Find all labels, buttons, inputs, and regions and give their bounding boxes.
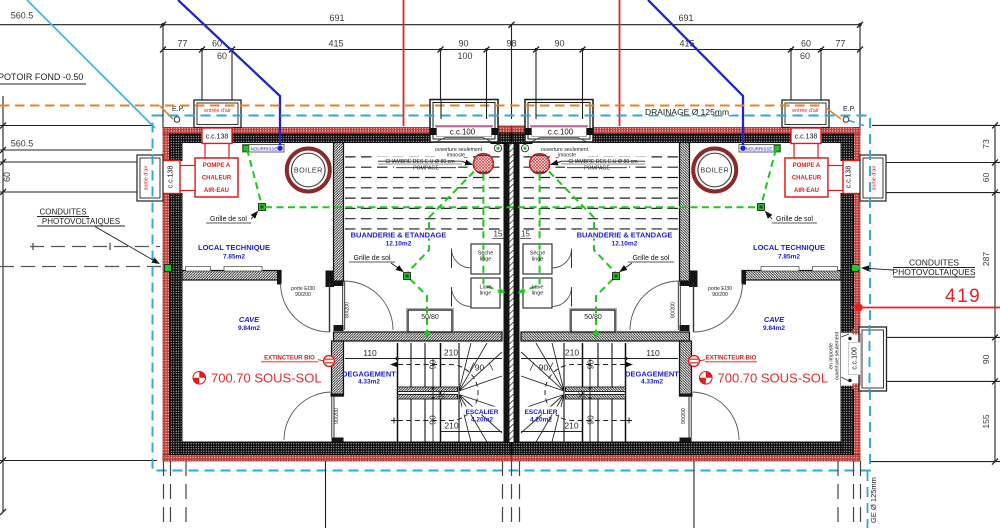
svg-text:Grille de sol: Grille de sol <box>776 216 813 223</box>
svg-text:691: 691 <box>678 13 693 23</box>
svg-text:560.5: 560.5 <box>11 139 34 149</box>
svg-text:90: 90 <box>539 363 549 373</box>
svg-text:60: 60 <box>800 51 810 61</box>
svg-text:90: 90 <box>437 390 447 400</box>
svg-text:c.c.138: c.c.138 <box>206 134 229 141</box>
svg-text:210: 210 <box>564 421 578 431</box>
svg-text:E.P.: E.P. <box>843 106 855 113</box>
svg-text:CHALEUR: CHALEUR <box>202 176 232 182</box>
svg-text:ouverture seulement: ouverture seulement <box>835 331 841 380</box>
svg-text:50/80: 50/80 <box>421 314 439 321</box>
svg-text:9.84m2: 9.84m2 <box>763 325 785 332</box>
svg-text:110: 110 <box>363 348 377 358</box>
svg-text:AIR-EAU: AIR-EAU <box>204 188 229 194</box>
svg-text:691: 691 <box>329 13 344 23</box>
svg-text:80/200: 80/200 <box>345 302 351 318</box>
svg-text:sortie d'air: sortie d'air <box>872 165 878 190</box>
svg-text:4.33m2: 4.33m2 <box>358 379 380 386</box>
svg-text:77: 77 <box>177 39 187 49</box>
svg-text:Grille de sol: Grille de sol <box>354 255 391 262</box>
svg-text:90/200: 90/200 <box>334 408 340 424</box>
svg-text:c.c.100: c.c.100 <box>450 128 476 137</box>
svg-text:77: 77 <box>835 39 845 49</box>
svg-text:c.c.138: c.c.138 <box>168 166 175 189</box>
svg-text:BUANDERIE & ETANDAGE: BUANDERIE & ETANDAGE <box>577 231 673 240</box>
svg-text:POMPE A: POMPE A <box>203 163 231 169</box>
svg-text:BOILER: BOILER <box>294 166 323 175</box>
svg-text:BUANDERIE & ETANDAGE: BUANDERIE & ETANDAGE <box>351 231 447 240</box>
svg-text:NOURRISSE: NOURRISSE <box>251 147 278 152</box>
svg-text:entrée d'air: entrée d'air <box>204 108 231 114</box>
svg-text:7.85m2: 7.85m2 <box>223 254 245 261</box>
svg-text:50/80: 50/80 <box>584 314 602 321</box>
svg-text:CONDUITES: CONDUITES <box>909 258 959 268</box>
svg-text:60: 60 <box>217 51 227 61</box>
svg-text:E.P.: E.P. <box>172 106 184 113</box>
svg-text:60: 60 <box>801 39 811 49</box>
svg-text:15: 15 <box>521 230 530 239</box>
svg-text:PHOTOVOLTAIQUES: PHOTOVOLTAIQUES <box>42 217 120 226</box>
svg-text:560.5: 560.5 <box>11 11 34 21</box>
svg-text:CAVE: CAVE <box>764 315 785 324</box>
svg-text:15: 15 <box>494 230 503 239</box>
svg-text:c.c.100: c.c.100 <box>852 347 859 370</box>
svg-text:linge: linge <box>532 291 544 297</box>
svg-text:ESCALIER: ESCALIER <box>466 409 499 416</box>
svg-text:12.10m2: 12.10m2 <box>386 241 412 248</box>
svg-text:CAVE: CAVE <box>239 315 260 324</box>
svg-text:CHALEUR: CHALEUR <box>792 176 822 182</box>
svg-text:90: 90 <box>981 354 991 364</box>
svg-text:90: 90 <box>577 390 587 400</box>
svg-text:12.10m2: 12.10m2 <box>612 241 638 248</box>
svg-text:90: 90 <box>586 360 596 370</box>
svg-text:c.c.138: c.c.138 <box>795 134 818 141</box>
svg-text:CONDUITES: CONDUITES <box>39 208 86 217</box>
svg-text:90: 90 <box>554 39 564 49</box>
svg-text:NOURRISSE: NOURRISSE <box>746 147 773 152</box>
svg-text:700.70 SOUS-SOL: 700.70 SOUS-SOL <box>211 371 322 386</box>
svg-text:90/200: 90/200 <box>681 408 687 424</box>
svg-text:7.85m2: 7.85m2 <box>778 254 800 261</box>
svg-text:155: 155 <box>981 414 991 428</box>
svg-text:415: 415 <box>328 39 343 49</box>
svg-text:PHOTOVOLTAIQUES: PHOTOVOLTAIQUES <box>892 267 975 277</box>
svg-text:c.c.100: c.c.100 <box>548 128 574 137</box>
svg-text:4.20m2: 4.20m2 <box>530 417 552 424</box>
svg-text:4.33m2: 4.33m2 <box>641 379 663 386</box>
svg-text:210: 210 <box>444 348 458 358</box>
svg-text:90: 90 <box>428 415 438 425</box>
svg-text:DEGAGEMENT: DEGAGEMENT <box>625 370 679 379</box>
svg-text:90/200: 90/200 <box>712 292 728 298</box>
svg-text:DEGAGEMENT: DEGAGEMENT <box>342 370 396 379</box>
svg-text:700.70 SOUS-SOL: 700.70 SOUS-SOL <box>718 371 829 386</box>
svg-text:98: 98 <box>506 39 516 49</box>
svg-text:linge: linge <box>532 257 544 263</box>
svg-text:80/200: 80/200 <box>671 302 677 318</box>
svg-text:Grille de sol: Grille de sol <box>633 255 670 262</box>
svg-text:ESCALIER: ESCALIER <box>525 409 558 416</box>
svg-text:c.c.138: c.c.138 <box>846 166 853 189</box>
svg-text:BOILER: BOILER <box>700 166 729 175</box>
svg-text:90: 90 <box>475 363 485 373</box>
svg-text:POMPAGE: POMPAGE <box>584 166 610 172</box>
svg-text:210: 210 <box>565 348 579 358</box>
svg-text:Grille de sol: Grille de sol <box>210 216 247 223</box>
svg-text:AIR-EAU: AIR-EAU <box>794 188 819 194</box>
svg-text:LOCAL TECHNIQUE: LOCAL TECHNIQUE <box>198 243 270 252</box>
svg-text:60: 60 <box>981 173 991 183</box>
svg-text:GE Ø 125mm: GE Ø 125mm <box>869 477 878 523</box>
svg-text:73: 73 <box>981 139 991 149</box>
svg-text:90: 90 <box>586 415 596 425</box>
svg-text:60: 60 <box>2 172 12 182</box>
svg-text:LOCAL TECHNIQUE: LOCAL TECHNIQUE <box>753 243 825 252</box>
svg-text:110: 110 <box>646 348 660 358</box>
svg-text:POTOIR FOND -0.50: POTOIR FOND -0.50 <box>0 72 83 82</box>
svg-text:419: 419 <box>945 286 981 307</box>
svg-text:90: 90 <box>428 360 438 370</box>
svg-text:90/200: 90/200 <box>295 292 311 298</box>
svg-text:DRAINAGE Ø 125mm: DRAINAGE Ø 125mm <box>645 107 729 117</box>
svg-text:210: 210 <box>444 421 458 431</box>
svg-text:linge: linge <box>480 257 492 263</box>
svg-text:4.20m2: 4.20m2 <box>471 417 493 424</box>
svg-text:POMPAGE: POMPAGE <box>413 166 439 172</box>
svg-text:EXTINCTEUR BIO: EXTINCTEUR BIO <box>264 356 315 362</box>
svg-text:entrée d'air: entrée d'air <box>792 108 819 114</box>
svg-text:9.84m2: 9.84m2 <box>238 325 260 332</box>
svg-text:90: 90 <box>458 39 468 49</box>
svg-text:POMPE A: POMPE A <box>793 163 821 169</box>
svg-text:100: 100 <box>457 51 472 61</box>
svg-text:linge: linge <box>480 291 492 297</box>
svg-text:sortie d'air: sortie d'air <box>144 165 150 190</box>
svg-text:EXTINCTEUR BIO: EXTINCTEUR BIO <box>706 356 757 362</box>
svg-text:287: 287 <box>981 252 991 266</box>
